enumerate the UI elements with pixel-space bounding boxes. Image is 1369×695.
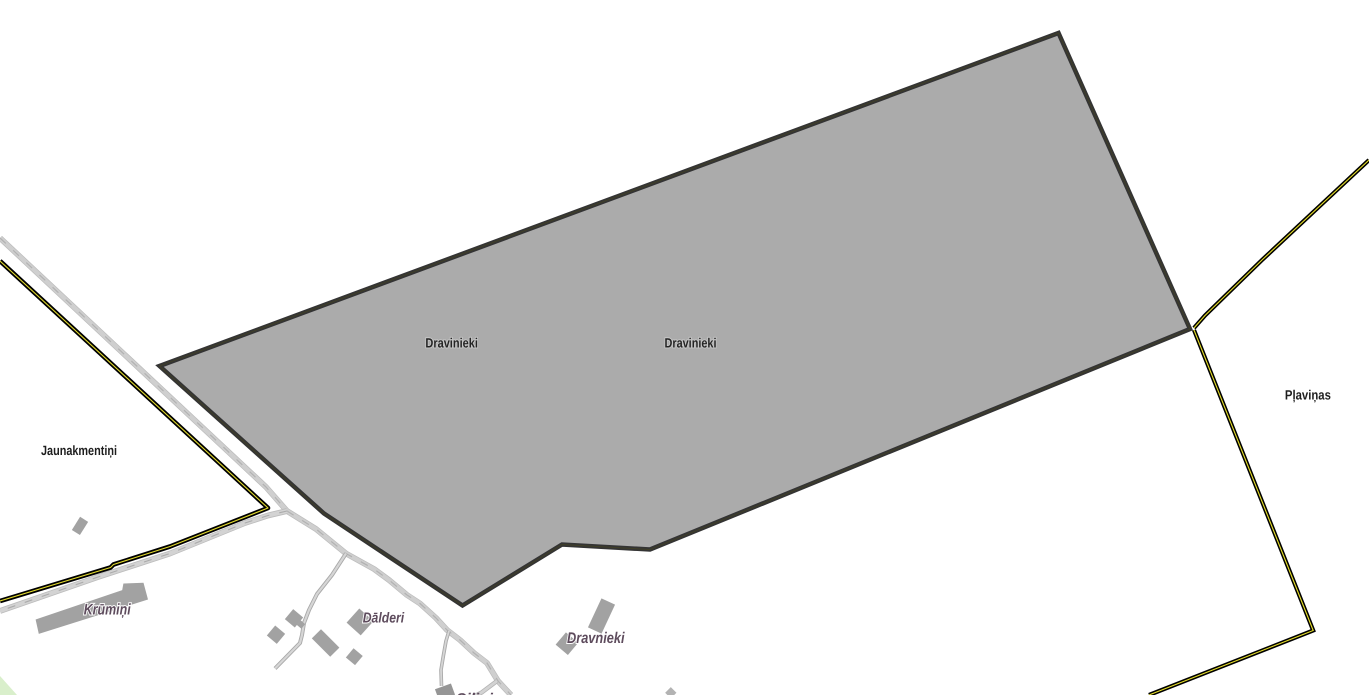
svg-text:Krūmiņi: Krūmiņi <box>84 602 132 619</box>
svg-text:Dravnieki: Dravnieki <box>567 630 625 647</box>
svg-text:Dravinieki: Dravinieki <box>665 335 717 350</box>
svg-text:Jaunakmentiņi: Jaunakmentiņi <box>41 443 117 458</box>
svg-text:Pļaviņas: Pļaviņas <box>1285 388 1331 403</box>
svg-text:Dālderi: Dālderi <box>363 610 405 626</box>
svg-text:Siliņi: Siliņi <box>456 691 494 695</box>
svg-text:Dravinieki: Dravinieki <box>425 335 478 350</box>
